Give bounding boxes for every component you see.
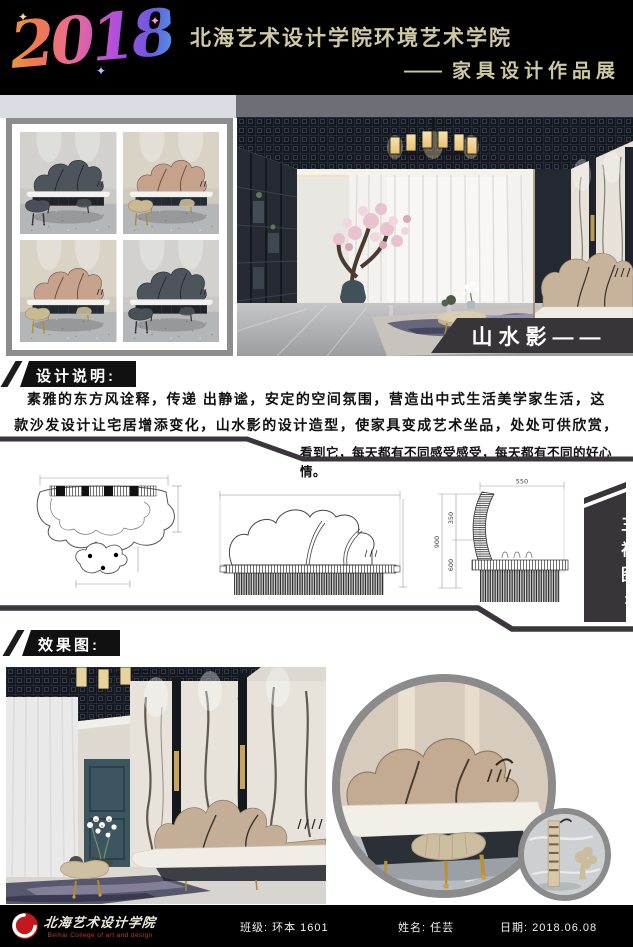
effect-scene (6, 667, 326, 904)
subtitle-dash: —— (404, 61, 442, 82)
divider-strip-light (0, 95, 236, 118)
design-notes-heading: 设计说明: (8, 361, 136, 387)
side-view-drawing: 550 350 900 600 (432, 476, 572, 606)
sofa-render-beige-1 (123, 132, 220, 234)
plan-view-drawing (26, 472, 191, 600)
notes-line: 款沙发设计让宅居增添变化，山水影的设计造型，使家具变成艺术坐品，处处可供欣赏， (0, 415, 633, 435)
notes-line: 素雅的东方风诠释，传递 出静谧，安定的空间氛围，营造出中式生活美学家生活，这 (0, 389, 633, 409)
school-name-cn: 北海艺术设计学院 (43, 912, 157, 931)
sofa-variant-scene (123, 132, 220, 234)
effect-render-detail (518, 808, 611, 901)
sofa-render-dark-1 (20, 132, 117, 234)
sofa-render-beige-2 (20, 240, 117, 342)
poster-title: 北海艺术设计学院环境艺术学院 (190, 22, 512, 52)
effect-render-room (6, 667, 326, 904)
sheer-curtain (6, 697, 78, 881)
sofa-variant-scene (123, 240, 220, 342)
svg-text:350: 350 (447, 512, 455, 524)
sofa-variant-scene (20, 240, 117, 342)
sofa-variant-grid (12, 124, 227, 350)
effects-heading: 效果图: (10, 630, 120, 656)
school-logo-icon (10, 911, 40, 941)
design-poster: 2018 ✦ ✦ ✦ 北海艺术设计学院环境艺术学院 ——家具设计作品展 (0, 0, 633, 947)
divider-strip-dark (236, 95, 633, 118)
product-name-label: 山水影—— (431, 318, 633, 353)
year-logo-2018: 2018 (7, 0, 175, 84)
date-field: 日期: 2018.06.08 (500, 919, 597, 935)
poster-subtitle: ——家具设计作品展 (250, 56, 620, 83)
design-notes-heading-label: 设计说明: (20, 361, 136, 387)
sofa-variant-panel (6, 118, 233, 356)
footer-bar: 北海艺术设计学院 Beihai College of art and desig… (0, 905, 633, 947)
effects-heading-label: 效果图: (22, 630, 120, 656)
decorative-divider (0, 434, 633, 464)
sofa-variant-scene (20, 132, 117, 234)
sofa-closeup-scene (340, 682, 548, 890)
sparkle-icon: ✦ (18, 10, 28, 24)
school-name-block: 北海艺术设计学院 Beihai College of art and desig… (44, 912, 156, 939)
name-field: 姓名: 任芸 (398, 919, 454, 935)
detail-scene (524, 814, 605, 895)
sparkle-icon: ✦ (150, 14, 160, 28)
interior-render-main: 山水影—— (237, 117, 633, 356)
svg-text:900: 900 (433, 536, 441, 548)
svg-text:550: 550 (516, 478, 528, 486)
door (84, 759, 130, 867)
class-field: 班级: 环本 1601 (240, 919, 329, 935)
sparkle-icon: ✦ (96, 64, 106, 78)
front-view-drawing (210, 487, 410, 597)
svg-text:600: 600 (447, 559, 455, 571)
header-bar: 2018 ✦ ✦ ✦ 北海艺术设计学院环境艺术学院 ——家具设计作品展 (0, 0, 633, 95)
subtitle-text: 家具设计作品展 (452, 61, 620, 82)
school-name-en: Beihai College of art and design (44, 932, 156, 939)
slash-icon (0, 361, 22, 387)
sofa-render-dark-2 (123, 240, 220, 342)
